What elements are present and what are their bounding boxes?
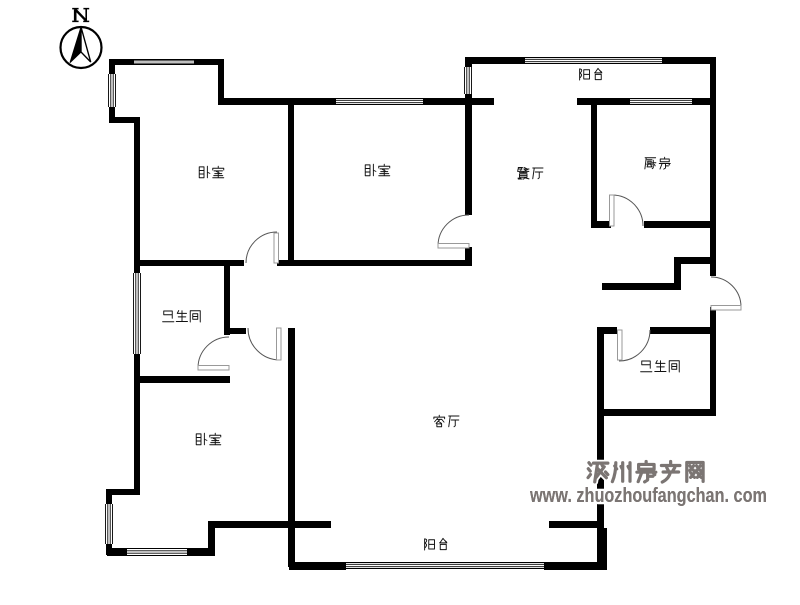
svg-text:www. zhuozhoufangchan. com: www. zhuozhoufangchan. com — [529, 485, 767, 507]
